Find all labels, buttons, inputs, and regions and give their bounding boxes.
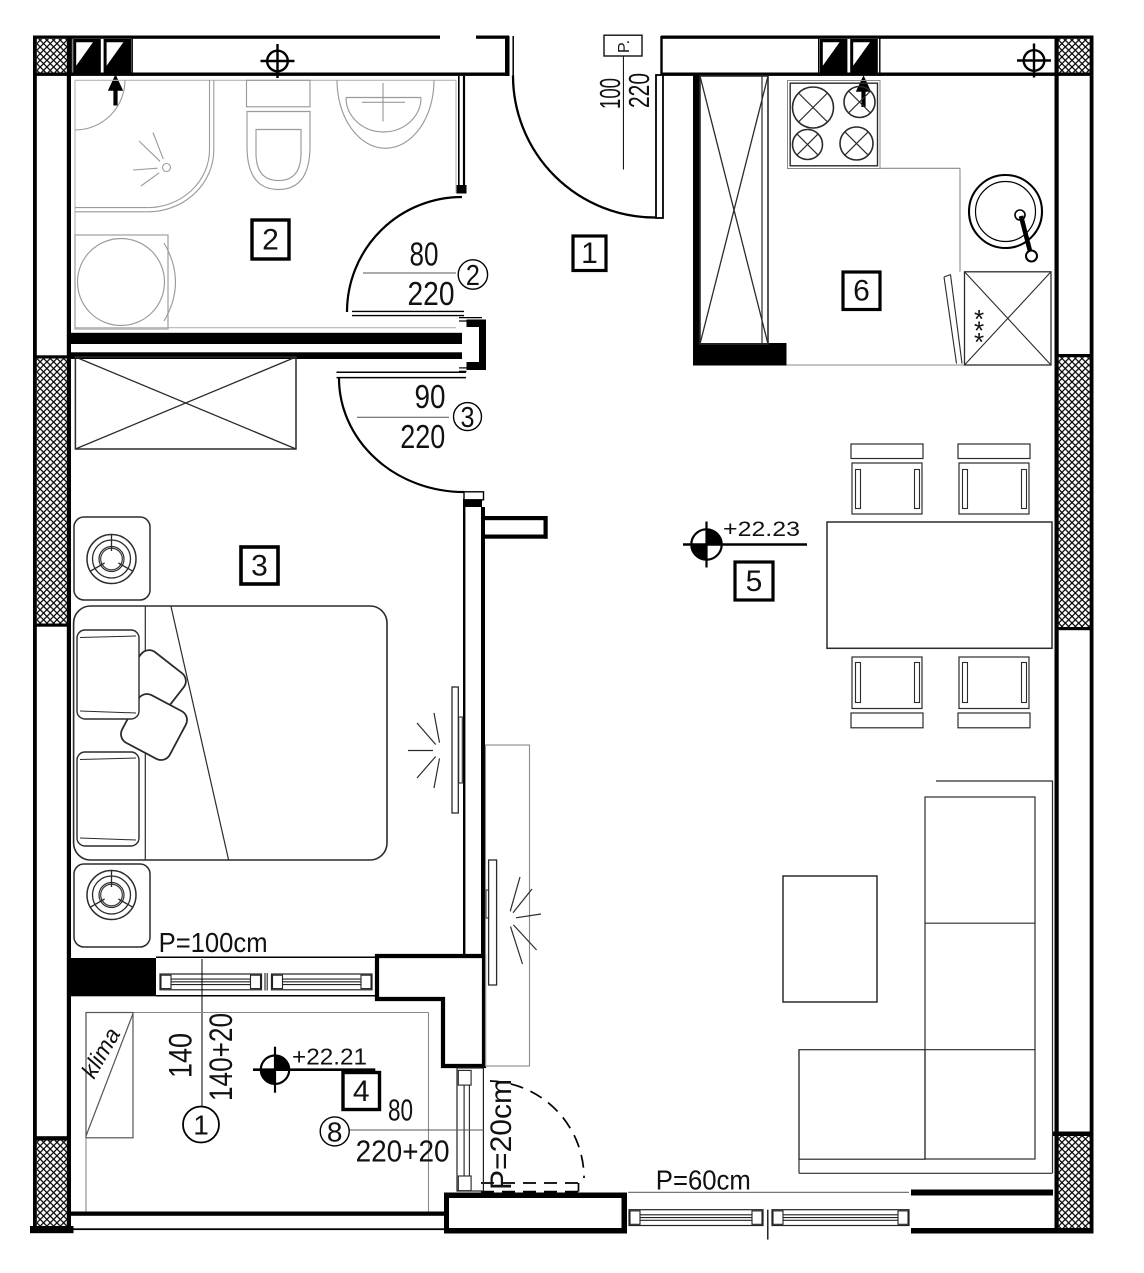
svg-text:220+20: 220+20 [356, 1134, 450, 1169]
svg-text:140: 140 [163, 1033, 199, 1078]
svg-text:+22.21: +22.21 [292, 1044, 367, 1070]
svg-text:80: 80 [388, 1093, 413, 1128]
svg-text:1: 1 [581, 237, 598, 270]
svg-text:220: 220 [400, 418, 445, 455]
svg-text:220: 220 [408, 275, 455, 312]
svg-text:100: 100 [595, 78, 627, 109]
svg-text:1: 1 [193, 1110, 209, 1141]
svg-text:3: 3 [251, 549, 268, 582]
svg-text:90: 90 [415, 378, 446, 415]
svg-text:2: 2 [262, 223, 279, 256]
svg-text:P=100cm: P=100cm [159, 927, 268, 958]
svg-text:6: 6 [853, 275, 870, 308]
svg-text:P=60cm: P=60cm [656, 1165, 751, 1196]
svg-text:220: 220 [624, 73, 656, 108]
svg-text:P.: P. [616, 40, 633, 53]
svg-text:8: 8 [327, 1117, 343, 1148]
svg-text:2: 2 [466, 260, 480, 292]
svg-text:3: 3 [461, 402, 475, 434]
svg-text:P=20cm: P=20cm [485, 1079, 518, 1190]
svg-text:+22.23: +22.23 [723, 518, 800, 541]
svg-text:140+20: 140+20 [203, 1013, 239, 1101]
svg-text:4: 4 [353, 1075, 370, 1108]
svg-text:80: 80 [410, 236, 439, 273]
svg-text:*: * [974, 327, 984, 357]
svg-text:5: 5 [746, 565, 763, 598]
